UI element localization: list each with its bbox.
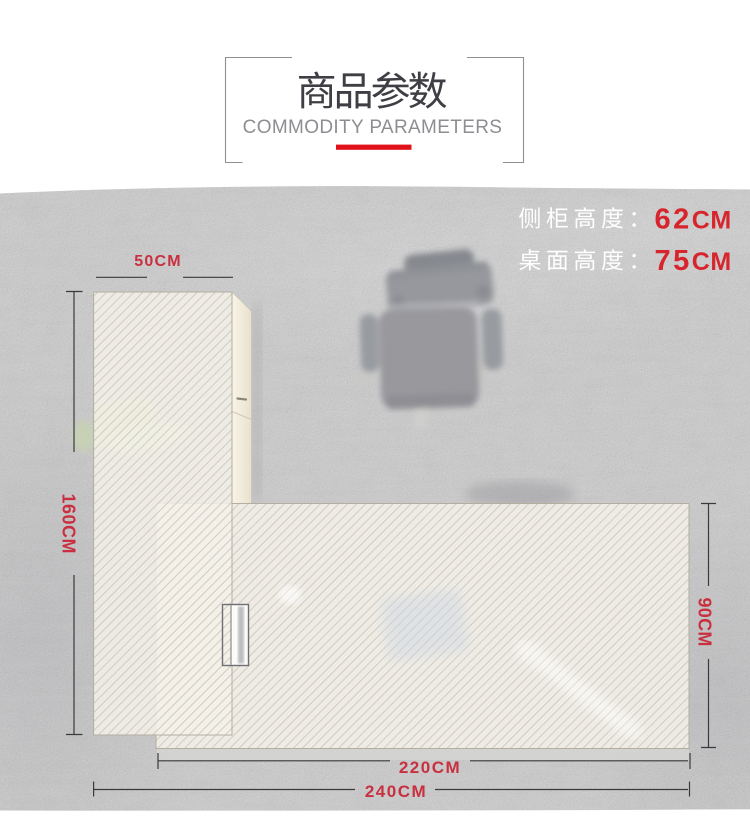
svg-text:90CM: 90CM — [695, 598, 715, 647]
svg-text:220CM: 220CM — [399, 758, 461, 777]
svg-text:50CM: 50CM — [134, 253, 181, 270]
svg-text:62CM: 62CM — [655, 204, 732, 236]
svg-text:COMMODITY PARAMETERS: COMMODITY PARAMETERS — [243, 117, 503, 138]
svg-text:160CM: 160CM — [59, 494, 79, 555]
svg-text:75CM: 75CM — [655, 245, 732, 277]
svg-text:240CM: 240CM — [365, 782, 427, 801]
